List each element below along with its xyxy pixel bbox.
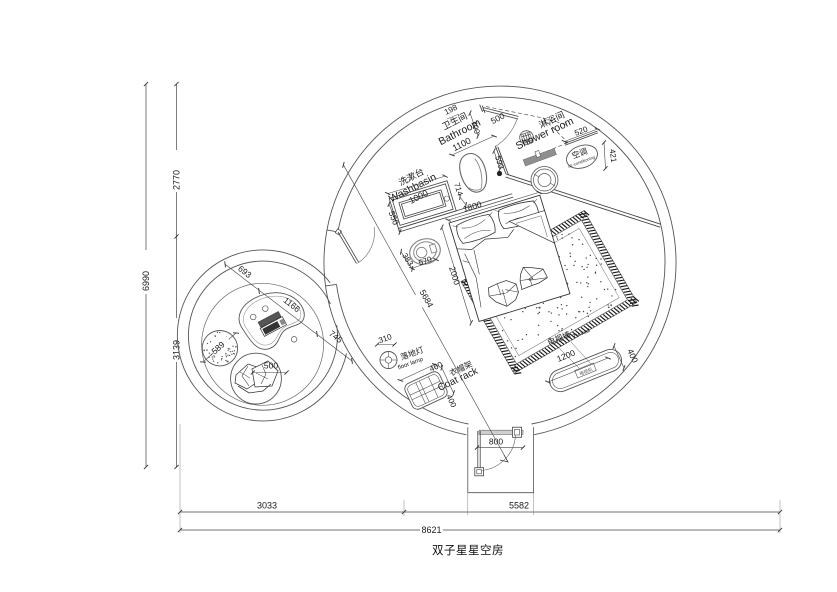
svg-text:5582: 5582 bbox=[509, 501, 529, 511]
svg-text:2770: 2770 bbox=[172, 170, 182, 190]
svg-text:3033: 3033 bbox=[257, 501, 277, 511]
svg-text:800: 800 bbox=[489, 437, 503, 447]
svg-text:500: 500 bbox=[264, 361, 278, 371]
svg-text:6990: 6990 bbox=[141, 271, 151, 291]
svg-text:双子星星空房: 双子星星空房 bbox=[432, 543, 504, 557]
svg-text:8621: 8621 bbox=[421, 525, 441, 535]
svg-text:421: 421 bbox=[608, 149, 619, 164]
